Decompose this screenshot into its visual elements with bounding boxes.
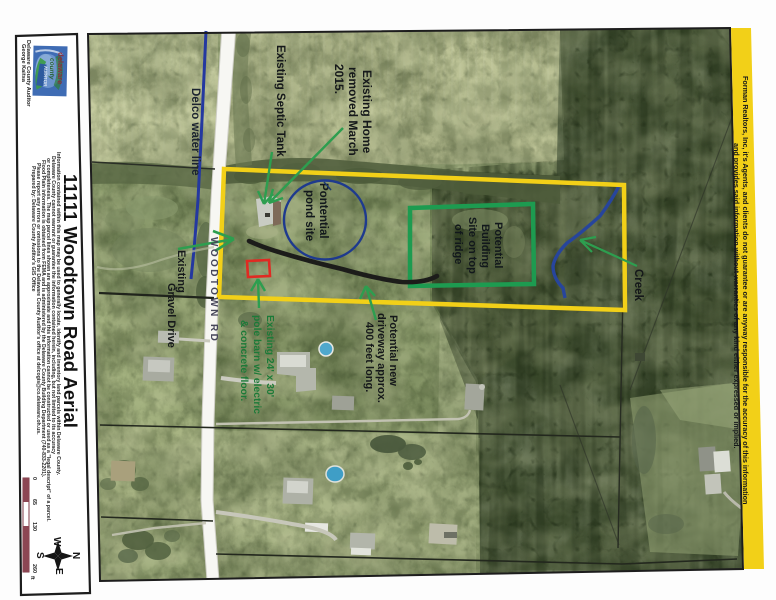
svg-text:Potential new: Potential new xyxy=(387,315,399,386)
svg-text:N: N xyxy=(70,552,81,559)
svg-text:Building: Building xyxy=(479,224,491,268)
svg-text:0: 0 xyxy=(31,477,37,480)
svg-text:removed March: removed March xyxy=(346,67,360,156)
svg-text:W: W xyxy=(51,537,62,547)
svg-text:of ridge: of ridge xyxy=(452,224,464,264)
svg-text:Existing Home: Existing Home xyxy=(360,70,374,154)
svg-text:Site on top: Site on top xyxy=(466,217,478,274)
svg-text:260: 260 xyxy=(31,564,37,573)
svg-text:George Kaitsa: George Kaitsa xyxy=(20,44,26,83)
svg-text:2015.: 2015. xyxy=(332,64,346,94)
svg-text:Forman Realtors, Inc, it's Age: Forman Realtors, Inc, it's Agents, and c… xyxy=(741,76,750,504)
svg-text:Gravel Drive: Gravel Drive xyxy=(165,283,177,348)
svg-text:Potential: Potential xyxy=(492,222,504,268)
svg-text:400 feet long.: 400 feet long. xyxy=(363,322,375,392)
svg-text:WOODTOWN RD: WOODTOWN RD xyxy=(208,237,219,343)
svg-text:delaware: delaware xyxy=(56,52,66,84)
svg-text:Pontential: Pontential xyxy=(317,183,329,239)
svg-text:S: S xyxy=(34,552,45,559)
svg-text:driveway approx.: driveway approx. xyxy=(375,313,387,403)
svg-text:pond site: pond site xyxy=(303,190,315,241)
svg-text:130: 130 xyxy=(31,522,37,531)
svg-text:ft: ft xyxy=(29,576,35,580)
svg-text:and provides said information: and provides said information without wa… xyxy=(732,143,741,449)
svg-text:& concrete floor.: & concrete floor. xyxy=(238,320,249,401)
svg-text:pole barn w/ electric: pole barn w/ electric xyxy=(251,315,262,414)
svg-text:Delco water line: Delco water line xyxy=(189,88,201,176)
svg-text:Creek: Creek xyxy=(632,269,644,302)
svg-text:Existing 24' x 30': Existing 24' x 30' xyxy=(264,315,275,397)
svg-text:Existing Septic Tank: Existing Septic Tank xyxy=(274,45,286,157)
svg-text:E: E xyxy=(53,568,64,575)
svg-text:65: 65 xyxy=(31,499,37,505)
svg-text:AUDITOR: AUDITOR xyxy=(43,66,48,87)
svg-text:11111 Woodtown Road Aerial: 11111 Woodtown Road Aerial xyxy=(60,174,81,428)
svg-text:Prepared by: Delaware County A: Prepared by: Delaware County Auditor's G… xyxy=(30,166,36,292)
